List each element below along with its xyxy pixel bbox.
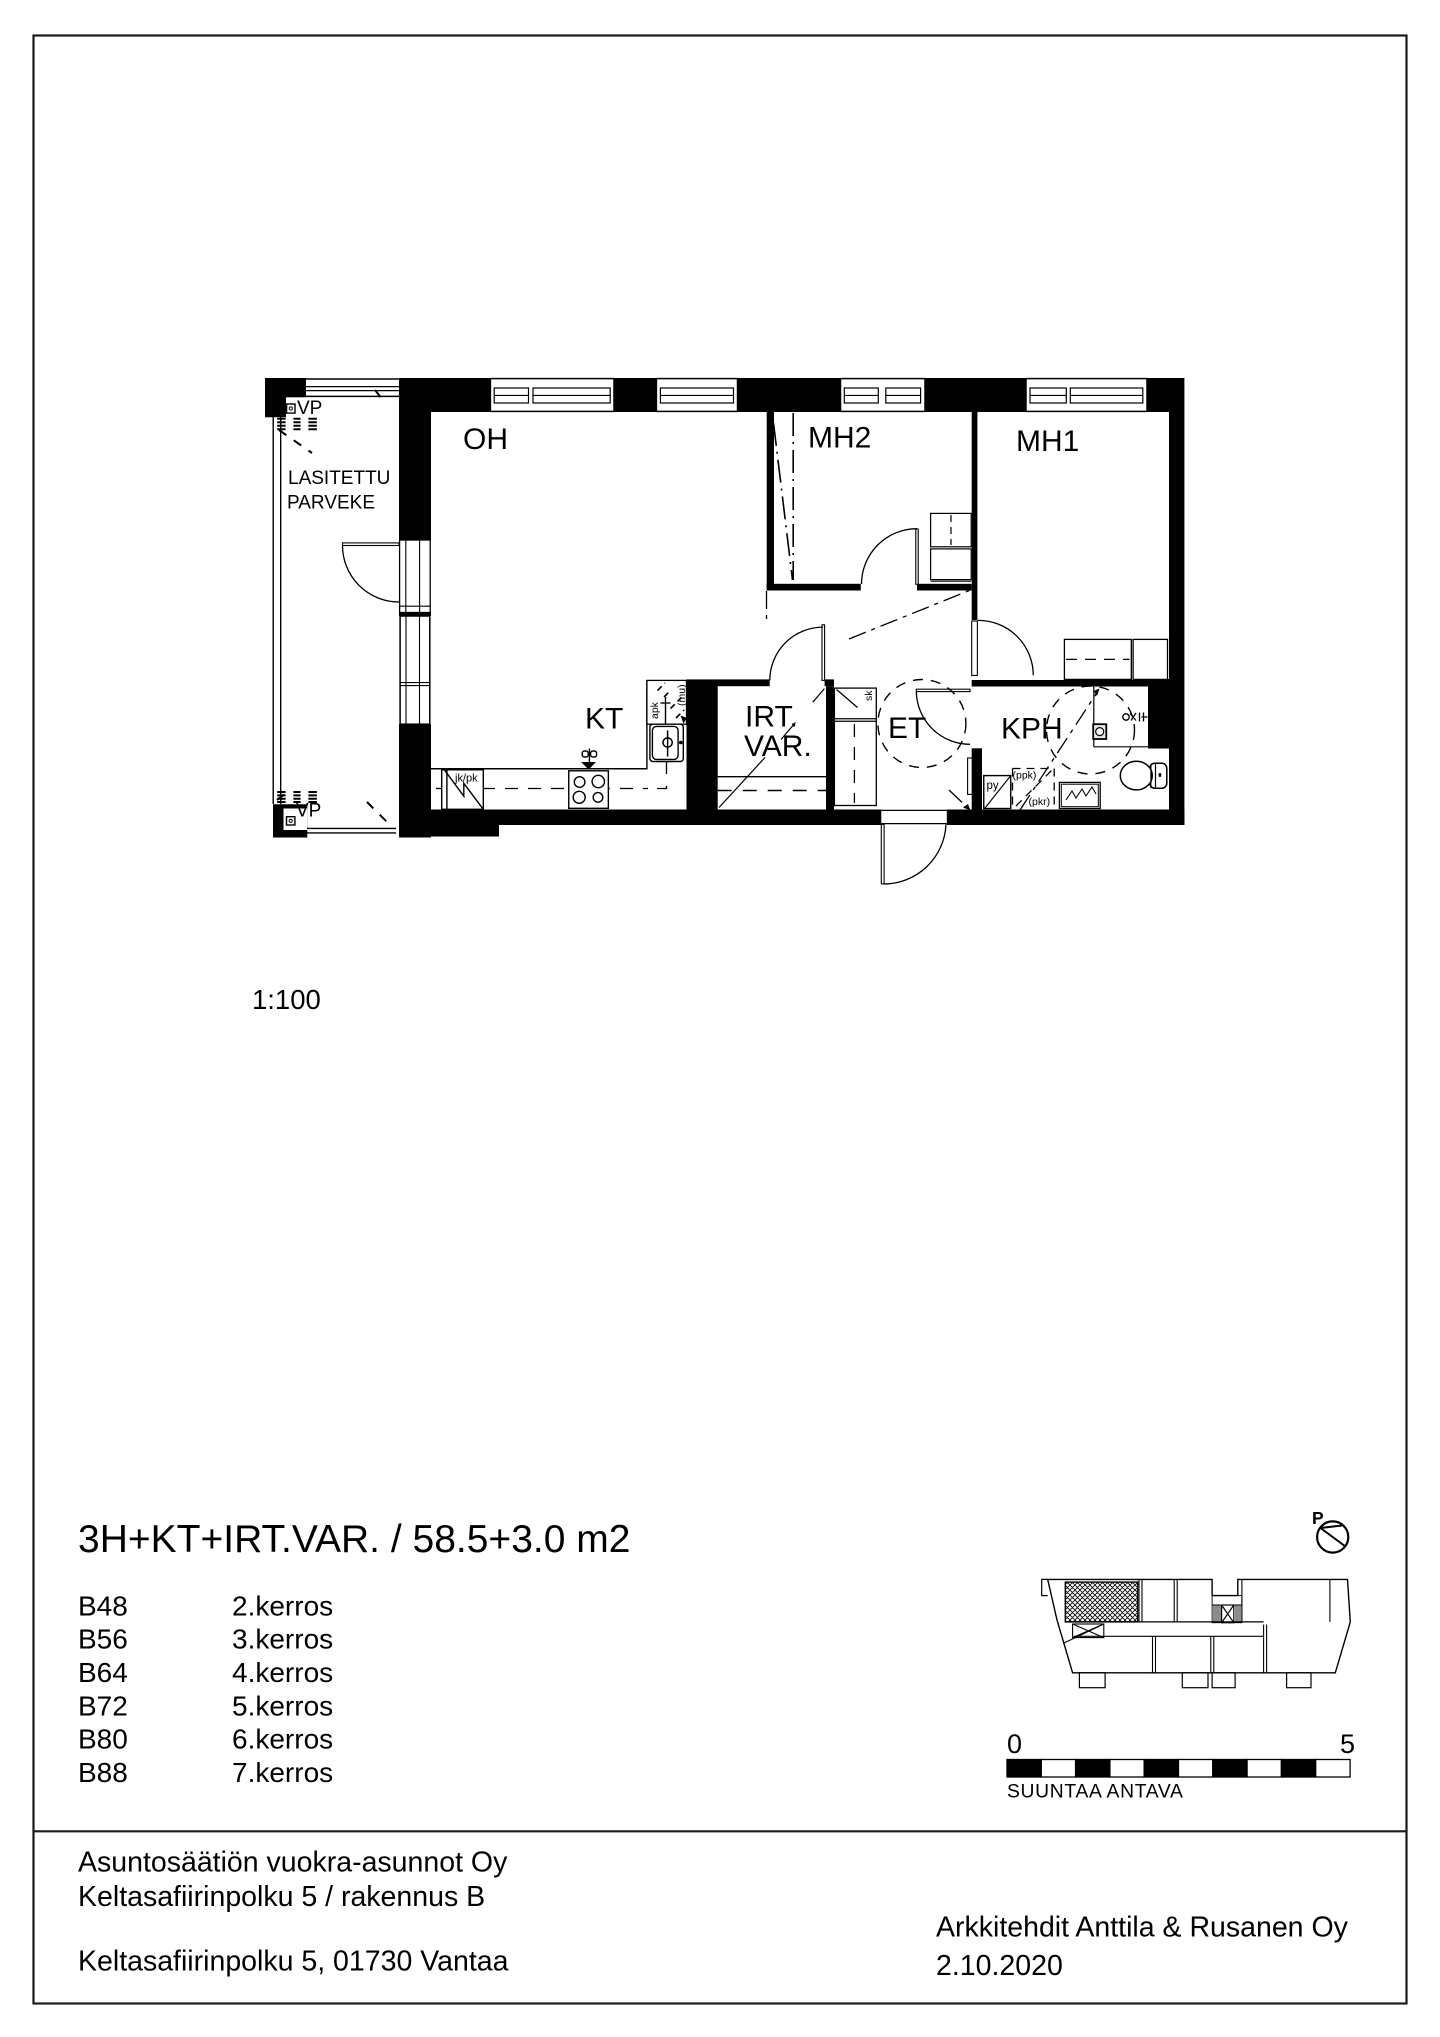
- svg-text:1:100: 1:100: [252, 984, 321, 1015]
- svg-text:VP: VP: [297, 398, 322, 419]
- svg-text:KPH: KPH: [1001, 713, 1063, 746]
- svg-text:B72: B72: [78, 1690, 128, 1721]
- svg-text:B88: B88: [78, 1757, 128, 1788]
- svg-text:5.kerros: 5.kerros: [232, 1690, 333, 1721]
- svg-text:(pkr): (pkr): [1029, 796, 1051, 808]
- svg-text:2.kerros: 2.kerros: [232, 1590, 333, 1621]
- svg-text:B64: B64: [78, 1657, 128, 1688]
- svg-text:VAR.: VAR.: [744, 730, 812, 763]
- svg-text:OH: OH: [463, 423, 508, 456]
- svg-text:B80: B80: [78, 1724, 128, 1755]
- svg-text:Keltasafiirinpolku 5 / rakennu: Keltasafiirinpolku 5 / rakennus B: [78, 1881, 485, 1913]
- svg-text:(ppk): (ppk): [1013, 770, 1037, 782]
- svg-text:3.kerros: 3.kerros: [232, 1624, 333, 1655]
- svg-text:2.10.2020: 2.10.2020: [936, 1950, 1063, 1982]
- svg-text:Keltasafiirinpolku 5, 01730 Va: Keltasafiirinpolku 5, 01730 Vantaa: [78, 1946, 509, 1978]
- svg-text:7.kerros: 7.kerros: [232, 1757, 333, 1788]
- svg-text:MH2: MH2: [808, 422, 871, 455]
- svg-text:(mu): (mu): [676, 684, 688, 706]
- svg-text:6.kerros: 6.kerros: [232, 1724, 333, 1755]
- svg-text:SUUNTAA ANTAVA: SUUNTAA ANTAVA: [1007, 1782, 1184, 1803]
- svg-text:LASITETTU: LASITETTU: [288, 468, 390, 489]
- svg-text:apk: apk: [649, 701, 661, 719]
- svg-text:0: 0: [1007, 1729, 1022, 1759]
- svg-text:B56: B56: [78, 1624, 128, 1655]
- svg-text:MH1: MH1: [1016, 425, 1079, 458]
- svg-text:sk: sk: [863, 690, 875, 701]
- svg-text:KT: KT: [585, 703, 623, 736]
- svg-text:5: 5: [1340, 1729, 1355, 1759]
- svg-text:4.kerros: 4.kerros: [232, 1657, 333, 1688]
- svg-text:VP: VP: [296, 801, 321, 822]
- svg-text:3H+KT+IRT.VAR. / 58.5+3.0 m2: 3H+KT+IRT.VAR. / 58.5+3.0 m2: [78, 1518, 630, 1561]
- svg-text:py: py: [987, 780, 999, 792]
- svg-text:jk/pk: jk/pk: [454, 773, 478, 785]
- svg-text:B48: B48: [78, 1590, 128, 1621]
- svg-text:ET: ET: [888, 712, 926, 745]
- svg-text:PARVEKE: PARVEKE: [287, 492, 375, 513]
- svg-text:Arkkitehdit Anttila & Rusanen: Arkkitehdit Anttila & Rusanen Oy: [936, 1912, 1349, 1944]
- svg-text:Asuntosäätiön vuokra-asunnot O: Asuntosäätiön vuokra-asunnot Oy: [78, 1847, 508, 1879]
